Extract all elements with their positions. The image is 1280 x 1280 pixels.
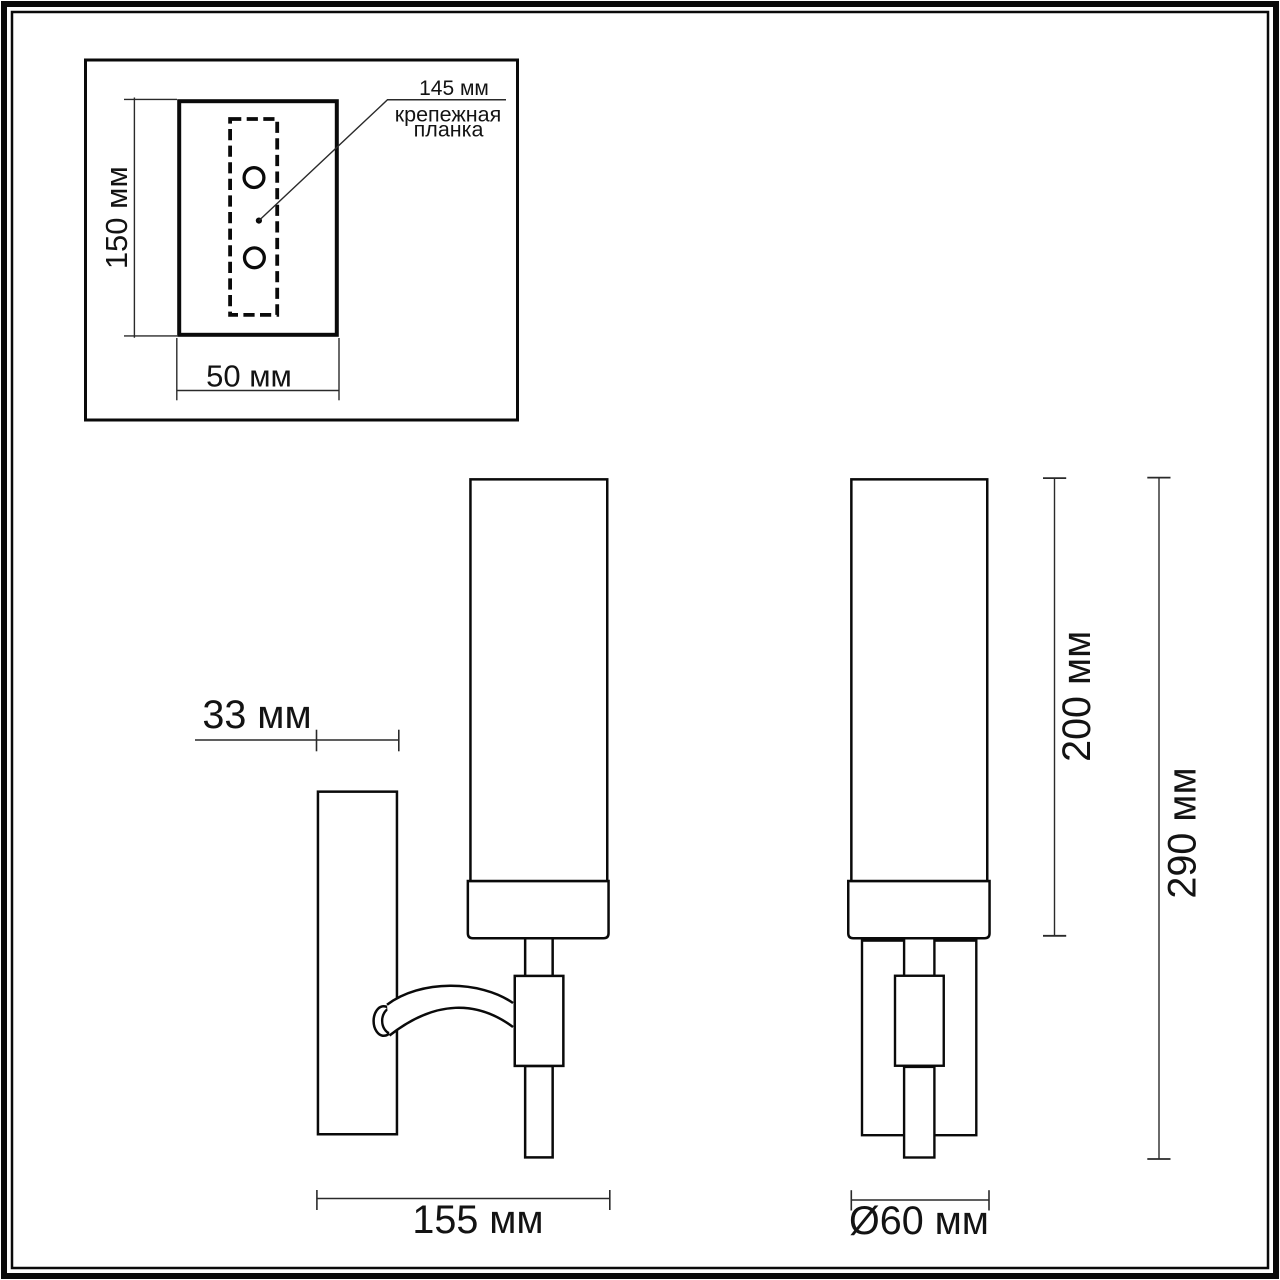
svg-text:Ø60 мм: Ø60 мм <box>849 1199 989 1243</box>
svg-text:50 мм: 50 мм <box>206 359 292 394</box>
svg-text:33 мм: 33 мм <box>202 693 311 737</box>
svg-text:145 мм: 145 мм <box>419 77 489 100</box>
svg-text:155 мм: 155 мм <box>412 1198 543 1242</box>
svg-text:150 мм: 150 мм <box>99 166 134 269</box>
svg-text:290 мм: 290 мм <box>1161 767 1205 898</box>
svg-text:200 мм: 200 мм <box>1055 631 1099 762</box>
svg-text:планка: планка <box>414 117 484 141</box>
